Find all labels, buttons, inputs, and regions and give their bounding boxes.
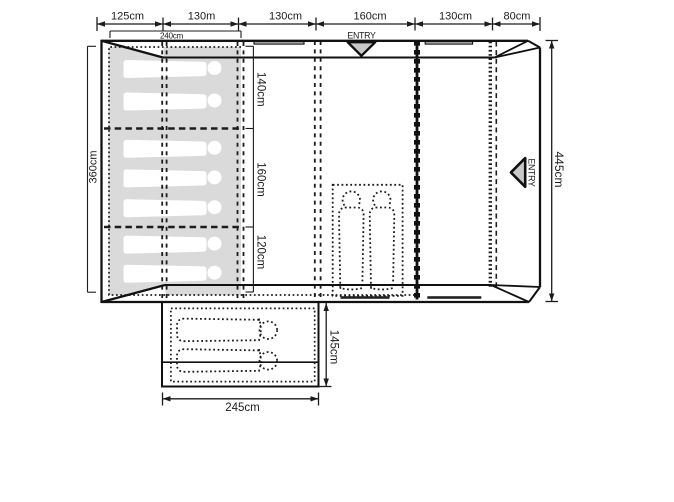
svg-text:80cm: 80cm (504, 11, 531, 23)
svg-text:160cm: 160cm (255, 162, 267, 197)
svg-text:145cm: 145cm (328, 330, 340, 365)
svg-text:140cm: 140cm (255, 72, 267, 107)
svg-text:130cm: 130cm (439, 11, 472, 23)
svg-text:130cm: 130cm (269, 11, 302, 23)
svg-text:160cm: 160cm (353, 11, 386, 23)
svg-text:125cm: 125cm (111, 11, 144, 23)
svg-text:240cm: 240cm (160, 32, 184, 41)
svg-text:445cm: 445cm (552, 151, 566, 187)
svg-text:130m: 130m (188, 11, 216, 23)
svg-text:ENTRY: ENTRY (527, 158, 537, 187)
svg-text:120cm: 120cm (255, 235, 267, 270)
svg-text:245cm: 245cm (225, 402, 260, 414)
svg-text:360cm: 360cm (88, 150, 100, 183)
svg-text:ENTRY: ENTRY (347, 30, 376, 40)
